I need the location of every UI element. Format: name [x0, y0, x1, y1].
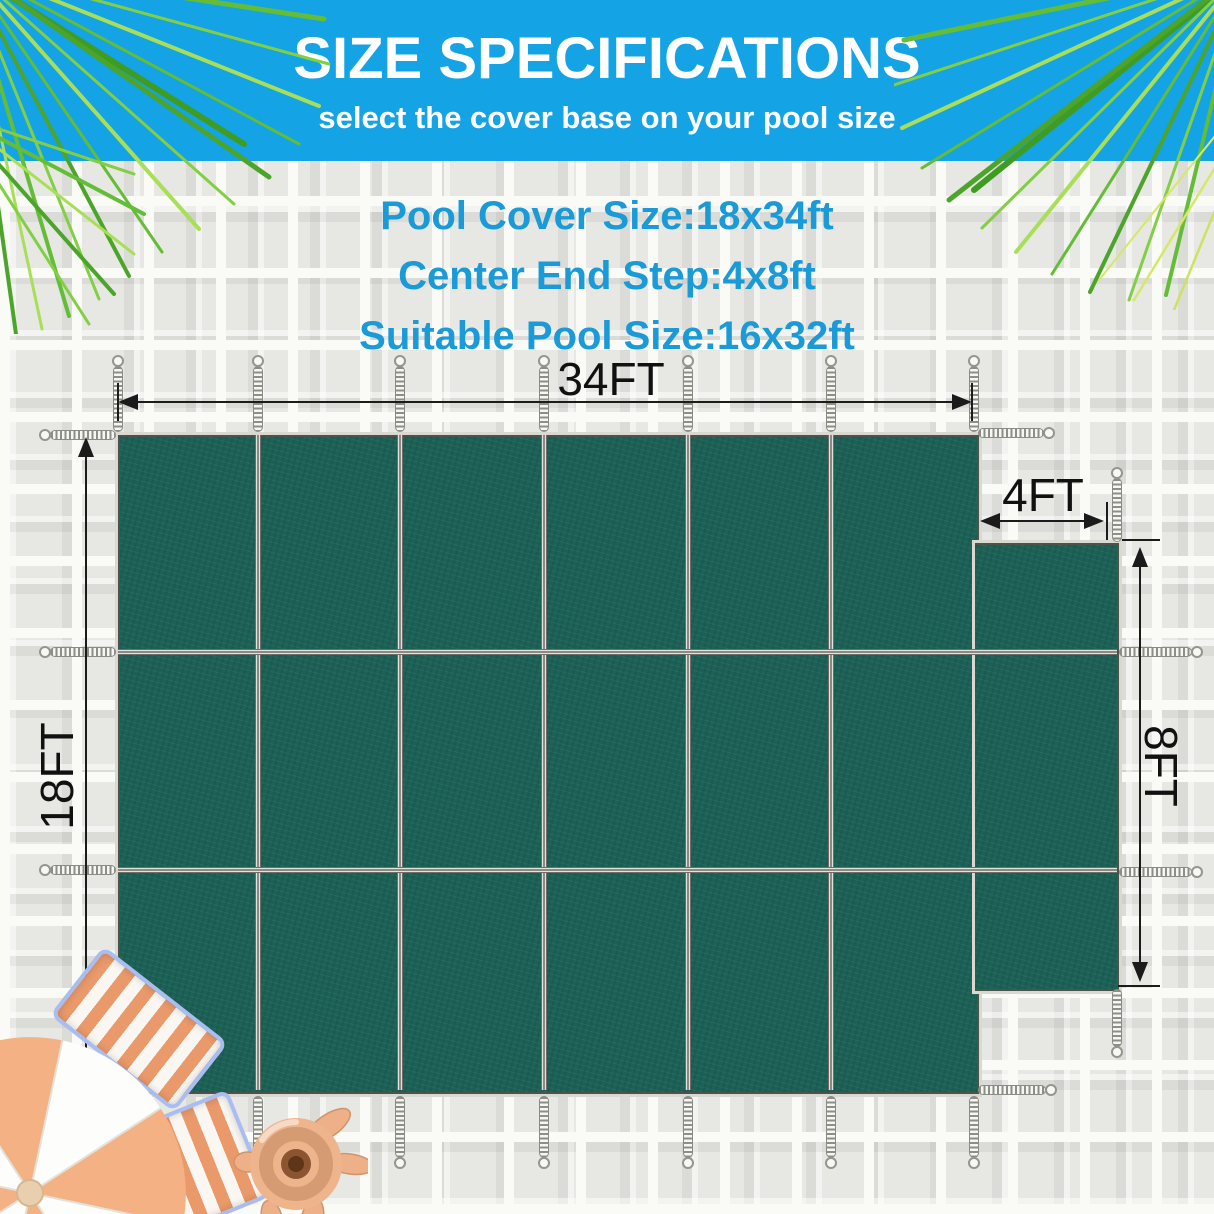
spring-anchor-icon [395, 366, 405, 432]
strap-vertical [828, 435, 834, 1090]
pool-cover [118, 435, 979, 1094]
spring-anchor-icon [1112, 478, 1122, 542]
spring-anchor-icon [253, 1096, 263, 1158]
dimension-label-34ft: 34FT [557, 352, 664, 406]
strap-vertical [255, 435, 261, 1090]
strap-vertical [541, 435, 547, 1090]
spring-anchor-icon [1112, 989, 1122, 1047]
dimension-tick [117, 383, 119, 421]
spring-anchor-icon [539, 366, 549, 432]
arrowhead-left-icon [118, 394, 138, 410]
dimension-tick [1118, 985, 1160, 987]
spring-anchor-icon [50, 865, 116, 875]
spring-anchor-icon [253, 366, 263, 432]
dimension-line [124, 401, 960, 403]
strap-horizontal [118, 867, 1117, 873]
spring-anchor-icon [539, 1096, 549, 1158]
spring-anchor-icon [50, 647, 116, 657]
spring-anchor-icon [683, 1096, 693, 1158]
spring-anchor-icon [113, 1096, 123, 1158]
arrowhead-down-icon [1132, 962, 1148, 982]
arrowhead-left-icon [980, 513, 1000, 529]
strap-vertical [397, 435, 403, 1090]
arrowhead-up-icon [78, 437, 94, 457]
spring-anchor-icon [1119, 867, 1192, 877]
spring-anchor-icon [969, 1096, 979, 1158]
dimension-tick [1122, 539, 1160, 541]
spring-anchor-icon [50, 1085, 116, 1095]
spring-anchor-icon [978, 428, 1044, 438]
spring-anchor-icon [978, 1085, 1046, 1095]
arrowhead-right-icon [1084, 513, 1104, 529]
dimension-label-18ft: 18FT [30, 722, 84, 829]
spring-anchor-icon [395, 1096, 405, 1158]
spring-anchor-icon [1119, 647, 1192, 657]
cover-center-end-step [975, 543, 1119, 991]
spring-anchor-icon [683, 366, 693, 432]
dimension-label-4ft: 4FT [1002, 468, 1084, 522]
dimension-tick [1106, 502, 1108, 540]
arrowhead-right-icon [952, 394, 972, 410]
dimension-label-8ft: 8FT [1134, 725, 1188, 807]
spring-anchor-icon [826, 366, 836, 432]
arrowhead-down-icon [78, 1064, 94, 1084]
strap-horizontal [118, 649, 1117, 655]
dimension-tick [971, 383, 973, 421]
strap-vertical [685, 435, 691, 1090]
spring-anchor-icon [826, 1096, 836, 1158]
page-background: SIZE SPECIFICATIONS select the cover bas… [0, 0, 1214, 1214]
arrowhead-up-icon [1132, 547, 1148, 567]
